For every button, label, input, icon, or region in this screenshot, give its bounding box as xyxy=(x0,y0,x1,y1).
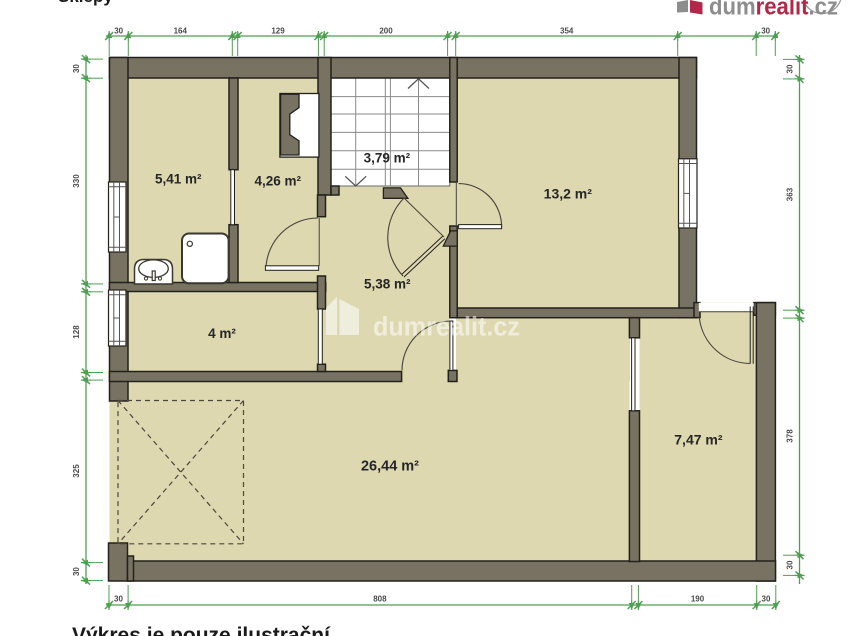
svg-text:129: 129 xyxy=(271,27,285,36)
svg-text:4 m²: 4 m² xyxy=(208,326,236,341)
svg-text:354: 354 xyxy=(560,27,574,36)
svg-text:dumrealit.cz: dumrealit.cz xyxy=(373,312,520,342)
svg-text:30: 30 xyxy=(72,567,81,576)
svg-text:363: 363 xyxy=(786,187,795,201)
svg-text:378: 378 xyxy=(786,429,795,443)
svg-text:30: 30 xyxy=(762,595,771,604)
svg-text:5,38 m²: 5,38 m² xyxy=(364,277,411,292)
svg-text:7,47 m²: 7,47 m² xyxy=(674,432,723,448)
svg-text:190: 190 xyxy=(691,595,705,604)
svg-text:30: 30 xyxy=(114,595,123,604)
svg-text:30: 30 xyxy=(114,27,123,36)
svg-text:808: 808 xyxy=(373,595,387,604)
svg-text:4,26 m²: 4,26 m² xyxy=(255,174,302,189)
svg-text:30: 30 xyxy=(786,560,795,569)
svg-text:30: 30 xyxy=(786,64,795,73)
svg-text:26,44 m²: 26,44 m² xyxy=(361,459,419,475)
svg-text:200: 200 xyxy=(379,27,393,36)
svg-text:5,41 m²: 5,41 m² xyxy=(155,172,202,187)
svg-text:3,79 m²: 3,79 m² xyxy=(364,151,411,166)
svg-text:Sklepy: Sklepy xyxy=(58,0,113,6)
svg-text:164: 164 xyxy=(174,27,188,36)
svg-text:128: 128 xyxy=(72,325,81,339)
svg-text:30: 30 xyxy=(761,27,770,36)
svg-text:Výkres je pouze ilustrační: Výkres je pouze ilustrační xyxy=(72,624,331,636)
svg-text:dumrealit.cz: dumrealit.cz xyxy=(709,0,838,21)
svg-text:30: 30 xyxy=(72,64,81,73)
svg-text:330: 330 xyxy=(72,174,81,188)
svg-text:325: 325 xyxy=(72,464,81,478)
svg-text:13,2 m²: 13,2 m² xyxy=(544,186,593,202)
